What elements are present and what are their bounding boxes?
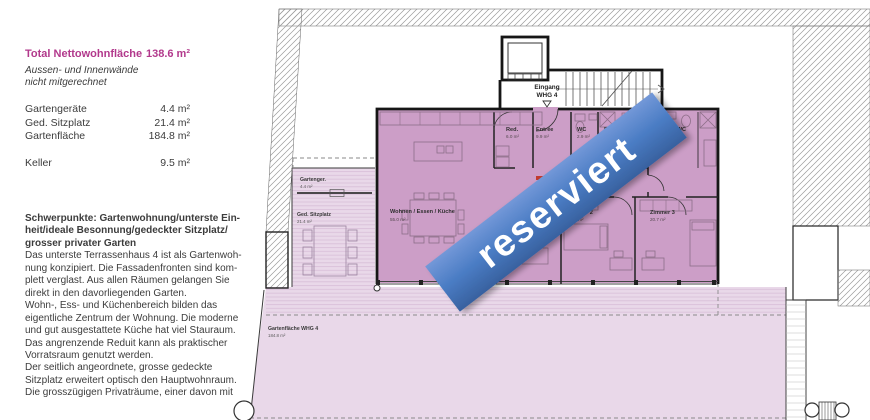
room-label-wohnen: Wohnen / Essen / Küche — [390, 209, 455, 215]
tree-symbol — [234, 401, 254, 420]
room-area-reduit: 6.0 m² — [506, 134, 519, 139]
room-area-wohnen: 55.0 m² — [390, 217, 406, 222]
entrance-door-gap — [533, 107, 558, 112]
room-label-zimmer3: Zimmer 3 — [650, 210, 675, 216]
label-gartengeraete: Gartenger. — [300, 177, 327, 183]
label-gartenflaeche: Gartenfläche WHG 4 — [268, 326, 318, 332]
floorplan-factsheet: Total Nettowohnfläche 138.6 m² Aussen- u… — [0, 0, 870, 420]
terrace-stripe-band — [266, 288, 786, 315]
label-sitzplatz: Ged. Sitzplatz — [297, 212, 331, 218]
room-area-wc: 2.9 m² — [577, 134, 590, 139]
area-gartenflaeche: 184.8 m² — [268, 333, 286, 338]
room-area-entree: 9.9 m² — [536, 134, 549, 139]
room-area-zimmer3: 20.7 m² — [650, 217, 666, 222]
area-gartengeraete: 4.4 m² — [300, 184, 313, 189]
room-label-reduit: Red. — [506, 127, 519, 133]
pergola — [805, 402, 849, 420]
entrance-label-line1: Eingang — [534, 84, 559, 91]
site-plan-drawing: Eingang WHG 4 Wohnen / Essen / Küche 55.… — [0, 0, 870, 420]
room-label-wc: WC — [577, 127, 586, 133]
room-label-entree: Entrée — [536, 127, 553, 133]
area-sitzplatz: 21.4 m² — [297, 219, 312, 224]
entrance-label-line2: WHG 4 — [537, 92, 558, 99]
site-notch — [793, 226, 838, 300]
exterior-stair — [786, 300, 806, 420]
